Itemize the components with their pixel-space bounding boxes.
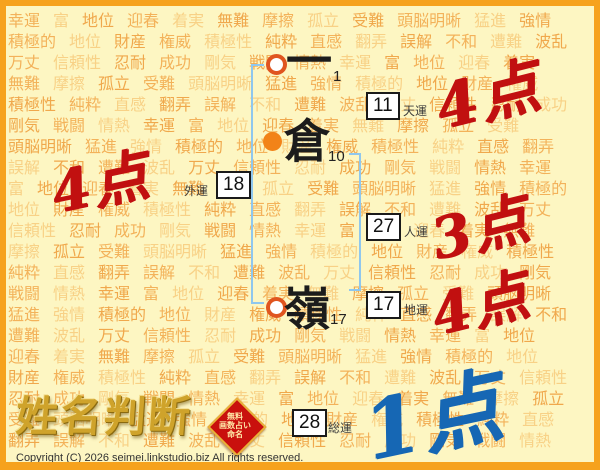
jinun-bracket-bottom-stub xyxy=(349,289,361,291)
soun-value-box: 28 xyxy=(292,409,327,437)
surname-second-char-marker xyxy=(263,132,282,151)
soun-label: 総運 xyxy=(328,419,352,436)
jinun-bracket-vertical xyxy=(359,153,361,291)
tenun-label: 天運 xyxy=(403,102,427,119)
badge-line-1: 無料 xyxy=(227,412,243,421)
badge-line-3: 命名 xyxy=(227,430,243,439)
chiun-value-box: 17 xyxy=(366,291,401,319)
tenun-value-box: 11 xyxy=(366,92,400,120)
gaiun-bracket-vertical xyxy=(251,64,253,304)
gaiun-score: 4点 xyxy=(43,130,157,230)
gaiun-bracket-top-stub xyxy=(251,64,264,66)
page-frame: 幸運富地位迎春着実無難摩擦孤立受難頭脳明晰猛進強情積極的地位財産権威積極性純粋直… xyxy=(0,0,600,470)
gaiun-bracket-bottom-stub xyxy=(251,302,264,304)
surname-first-char-marker xyxy=(266,54,287,75)
free-naming-badge[interactable]: 無料 画数占い 命名 xyxy=(208,398,262,452)
jinun-label: 人運 xyxy=(404,223,428,240)
name-char-1-strokes: 1 xyxy=(333,68,341,85)
name-char-2: 倉 xyxy=(284,118,330,164)
tenun-score: 4点 xyxy=(425,37,549,147)
gaiun-value-box: 18 xyxy=(216,171,251,199)
jinun-value-box: 27 xyxy=(366,213,401,241)
name-char-3: 嶺 xyxy=(284,286,330,332)
badge-text: 無料 画数占い 命名 xyxy=(208,398,262,452)
name-char-2-strokes: 10 xyxy=(328,148,345,165)
chiun-label: 地運 xyxy=(404,301,428,318)
name-char-1: 一 xyxy=(286,38,332,84)
badge-line-2: 画数占い xyxy=(219,421,251,430)
name-char-3-strokes: 17 xyxy=(330,311,347,328)
site-logo[interactable]: 姓名判断 xyxy=(15,396,194,438)
jinun-bracket-top-stub xyxy=(349,153,361,155)
soun-score: 1点 xyxy=(351,341,512,470)
gaiun-label: 外運 xyxy=(184,182,208,199)
